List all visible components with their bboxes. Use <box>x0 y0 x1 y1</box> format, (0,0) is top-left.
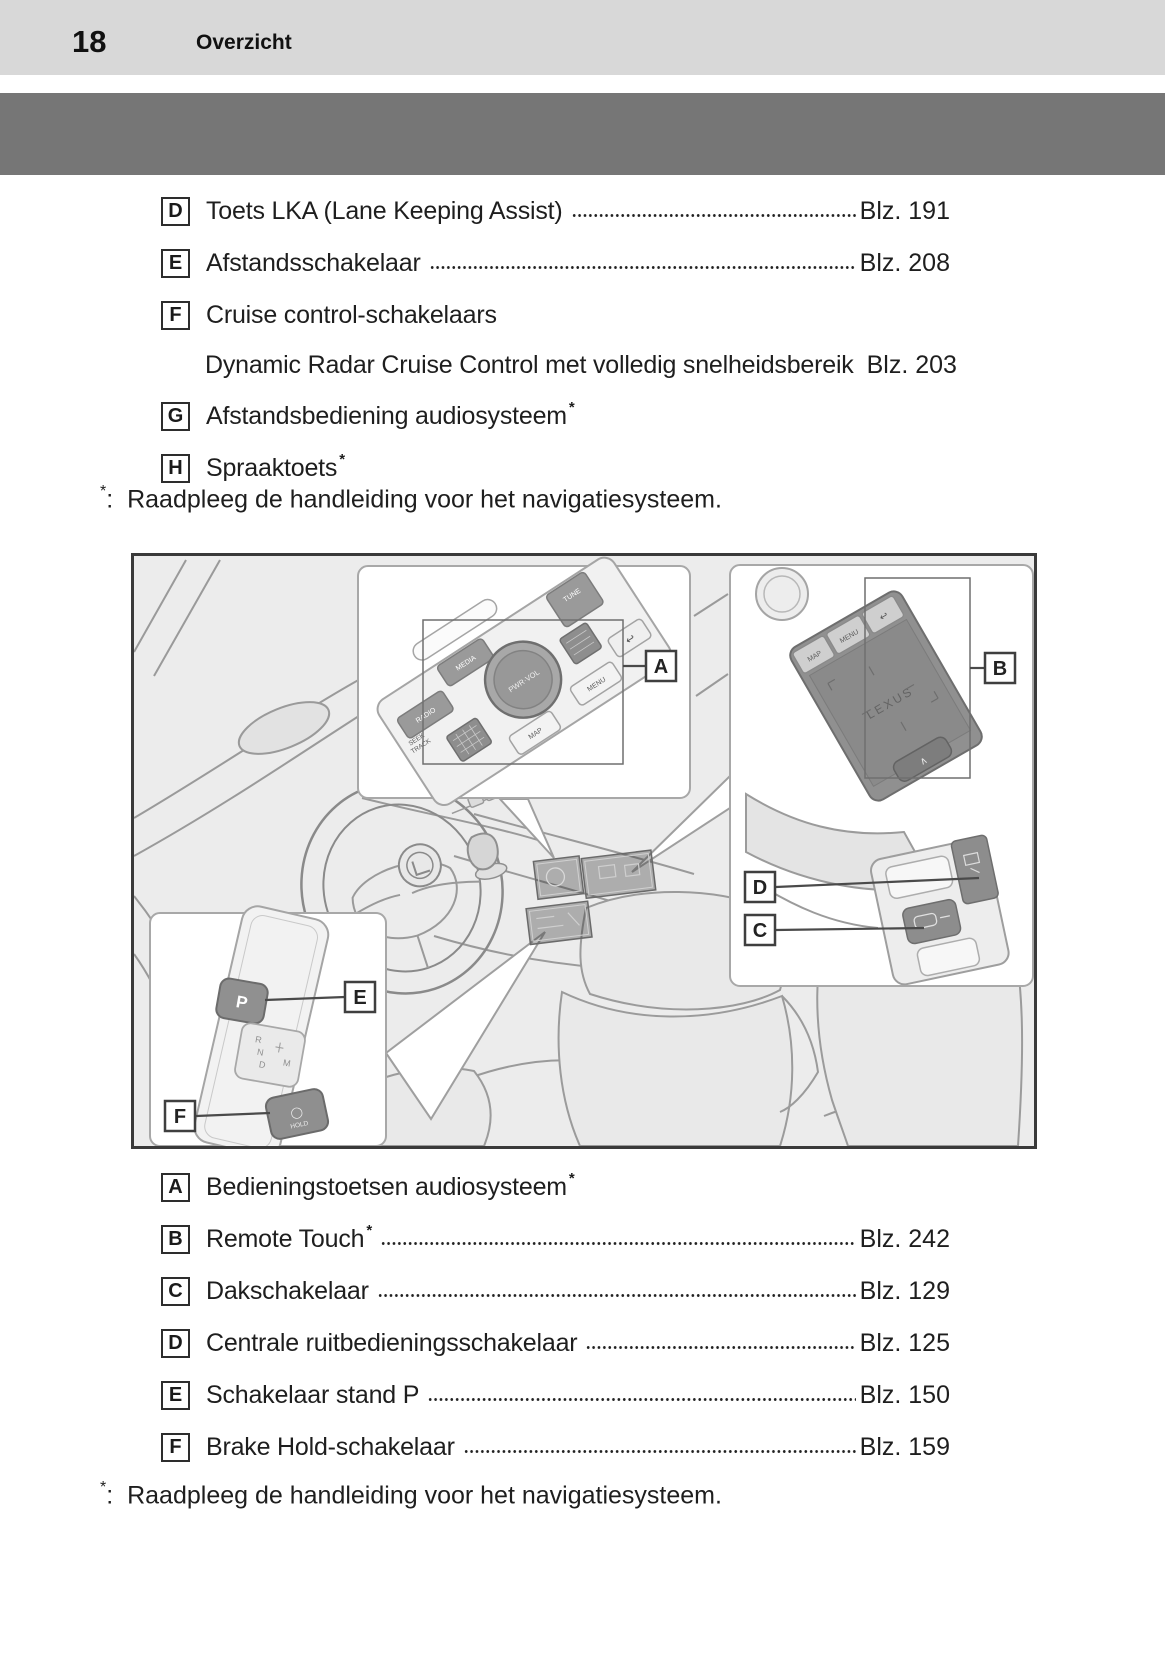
item-text: Brake Hold-schakelaar <box>206 1433 455 1462</box>
toc-item-f: F Cruise control-schakelaars <box>161 300 950 330</box>
toc-item-h: H Spraaktoets * <box>161 453 950 483</box>
item-label-box: B <box>161 1225 190 1254</box>
item-label-box: C <box>161 1277 190 1306</box>
item-label-box: F <box>161 301 190 330</box>
hold-circle-icon: ◯ <box>290 1106 305 1120</box>
toc-item-e2: E Schakelaar stand P Blz. 150 <box>161 1380 950 1410</box>
item-text: Dynamic Radar Cruise Control met volledi… <box>205 351 854 380</box>
interior-illustration: RADIO MEDIA TUNE SEEK TRACK PWR·VOL ↩ ME… <box>134 556 1034 1146</box>
item-label-box: H <box>161 454 190 483</box>
page-reference: Blz. 208 <box>860 249 950 278</box>
asterisk-marker: * <box>100 1479 106 1496</box>
footnote: *: Raadpleeg de handleiding voor het nav… <box>100 1481 722 1510</box>
dot-leader <box>464 1448 856 1455</box>
shift-knob <box>464 829 509 882</box>
page-reference: Blz. 242 <box>860 1225 950 1254</box>
item-label-box: G <box>161 402 190 431</box>
item-text: Centrale ruitbedieningsschakelaar <box>206 1329 577 1358</box>
toc-item-e: E Afstandsschakelaar Blz. 208 <box>161 248 950 278</box>
item-text: Afstandsbediening audiosysteem <box>206 402 567 431</box>
section-title: Overzicht <box>196 31 292 55</box>
dot-leader <box>428 1396 855 1403</box>
toc-subitem-f: Dynamic Radar Cruise Control met volledi… <box>161 350 950 380</box>
svg-text:B: B <box>993 658 1007 680</box>
svg-text:D: D <box>753 877 767 899</box>
svg-text:C: C <box>753 920 767 942</box>
toc-item-g: G Afstandsbediening audiosysteem * <box>161 401 950 431</box>
page-reference: Blz. 159 <box>860 1433 950 1462</box>
toc-item-b2: B Remote Touch * Blz. 242 <box>161 1224 950 1254</box>
item-label-box: D <box>161 1329 190 1358</box>
item-text: Bedieningstoetsen audiosysteem <box>206 1173 567 1202</box>
dot-leader <box>586 1344 855 1351</box>
asterisk-marker: * <box>569 399 575 416</box>
svg-text:E: E <box>353 987 366 1009</box>
dot-leader <box>378 1292 856 1299</box>
highlight-audio-controls <box>533 856 583 899</box>
toc-item-d: D Toets LKA (Lane Keeping Assist) Blz. 1… <box>161 196 950 226</box>
page-reference: Blz. 129 <box>860 1277 950 1306</box>
page-number: 18 <box>72 24 106 60</box>
item-text: Cruise control-schakelaars <box>206 301 497 330</box>
footnote-text: Raadpleeg de handleiding voor het naviga… <box>127 1481 722 1509</box>
dot-leader <box>381 1240 855 1247</box>
page-reference: Blz. 191 <box>860 197 950 226</box>
svg-text:F: F <box>174 1106 186 1128</box>
asterisk-marker: * <box>569 1170 575 1187</box>
park-button: P <box>215 977 269 1025</box>
dot-leader <box>572 212 856 219</box>
item-label-box: A <box>161 1173 190 1202</box>
item-text: Remote Touch <box>206 1225 364 1254</box>
toc-item-d2: D Centrale ruitbedieningsschakelaar Blz.… <box>161 1328 950 1358</box>
asterisk-marker: * <box>366 1222 372 1239</box>
footnote: *: Raadpleeg de handleiding voor het nav… <box>100 485 722 514</box>
item-label-box: E <box>161 1381 190 1410</box>
toc-item-a2: A Bedieningstoetsen audiosysteem * <box>161 1172 950 1202</box>
item-label-box: E <box>161 249 190 278</box>
page-reference: Blz. 203 <box>867 351 957 380</box>
toc-item-f2: F Brake Hold-schakelaar Blz. 159 <box>161 1432 950 1462</box>
interior-overview-figure: RADIO MEDIA TUNE SEEK TRACK PWR·VOL ↩ ME… <box>131 553 1037 1149</box>
item-text: Afstandsschakelaar <box>206 249 421 278</box>
item-text: Toets LKA (Lane Keeping Assist) <box>206 197 563 226</box>
asterisk-marker: * <box>100 483 106 500</box>
photo-band <box>0 93 1165 175</box>
manual-page: 18 Overzicht D Toets LKA (Lane Keeping A… <box>0 0 1165 1653</box>
page-reference: Blz. 150 <box>860 1381 950 1410</box>
toc-item-c2: C Dakschakelaar Blz. 129 <box>161 1276 950 1306</box>
item-text: Schakelaar stand P <box>206 1381 419 1410</box>
item-text: Dakschakelaar <box>206 1277 369 1306</box>
item-label-box: D <box>161 197 190 226</box>
pointer-wedge-a <box>500 799 554 858</box>
shift-gate-panel: R N D M <box>234 1022 307 1088</box>
dot-leader <box>430 264 856 271</box>
item-text: Spraaktoets <box>206 454 337 483</box>
footnote-text: Raadpleeg de handleiding voor het naviga… <box>127 485 722 513</box>
svg-text:A: A <box>654 656 668 678</box>
page-reference: Blz. 125 <box>860 1329 950 1358</box>
page-header: 18 Overzicht <box>0 0 1165 75</box>
console-switches <box>868 834 1012 986</box>
asterisk-marker: * <box>339 451 345 468</box>
item-label-box: F <box>161 1433 190 1462</box>
